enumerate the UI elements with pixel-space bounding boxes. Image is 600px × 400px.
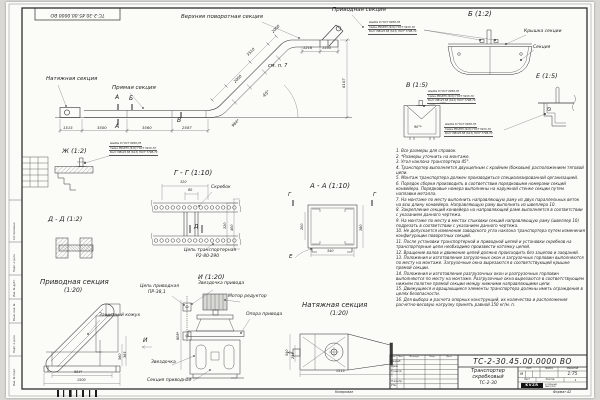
- i-detail-view: [183, 294, 244, 378]
- s-sheets-value: 1: [564, 378, 587, 382]
- callout-bolt: Болт М8х25.58 (S13) ГОСТ 7798-70: [368, 30, 417, 35]
- tension-section-title: Натяжная секция: [302, 302, 367, 309]
- i-detail-title: И (1:20): [198, 274, 225, 281]
- note-item: 10. Не допускается изменение заводского …: [396, 228, 585, 238]
- lit-label: Лит.: [518, 367, 540, 370]
- label-protective-cover: Защитный кожух: [99, 314, 140, 319]
- bolt-callout-zh: Шайба 8 ГОСТ 6958-78 Гайка М8-6Н5 (S13) …: [109, 142, 158, 156]
- label-see-note-7: см. п. 7: [268, 64, 287, 69]
- drive-dim-1500: 1500: [77, 379, 86, 383]
- label-scraper: Скребок: [211, 186, 231, 191]
- label-tension-section: Натяжная секция: [46, 77, 97, 83]
- format-label: Формат А2: [553, 391, 571, 394]
- doc-name-line3: ТС-2-30: [458, 381, 518, 386]
- detail-b-title: Б (1:2): [468, 11, 492, 18]
- detail-aa-title: А - А (1:10): [310, 183, 350, 190]
- detail-v: [404, 101, 446, 141]
- bolt-callout-b: Шайба 8 ГОСТ 6958-78 Гайка М8-6Н5 (S13) …: [368, 21, 417, 35]
- detail-zh-title: Ж (1:2): [62, 148, 87, 155]
- bolt-callout-v: Шайба 8 ГОСТ 6958-78 Гайка М8-6Н5 (S13) …: [427, 90, 476, 104]
- row-nkontr: Н.контр.: [391, 380, 403, 383]
- callout-bolt: Болт М8х25.58 (S13) ГОСТ 7798-70: [427, 99, 476, 104]
- note-item: 4. Транспортер выполняется двухцепным с …: [396, 165, 585, 175]
- drive-dim-984: 984*: [74, 371, 82, 375]
- note-item: 15. Движущиеся и вращающиеся элементы тр…: [396, 286, 585, 296]
- label-straight-section: Прямая секция: [112, 86, 156, 92]
- col-docum: № докум.: [404, 356, 425, 358]
- s-sheet-label: Лист: [518, 378, 536, 381]
- gg-dim-80: 80: [188, 189, 192, 193]
- margin-podp-data-1: Подп. и дата: [13, 254, 16, 272]
- aa-dim-340: 340: [327, 250, 333, 254]
- kvzr-logo-sub2: ЗАВОД РЭП: [545, 386, 556, 388]
- margin-cells: [9, 8, 120, 356]
- row-razrab: Разраб.: [391, 360, 401, 363]
- mark-e: Е: [289, 255, 292, 261]
- detail-gg-dims: [162, 184, 240, 250]
- drive-section-title: Приводная секция: [40, 279, 109, 286]
- mass-label: Масса: [540, 367, 558, 370]
- label-upper-turn-section: Верхняя поворотная секция: [181, 15, 263, 21]
- gg-dim-400: 400: [231, 225, 235, 231]
- tension-dim-540: 540: [286, 350, 290, 356]
- label-drive-section: Приводная секция: [332, 8, 386, 14]
- dim-3500: 3500: [97, 126, 107, 130]
- label-conveyor-chain-2: Р2-80-290: [196, 255, 219, 260]
- dim-3560: 3560: [142, 126, 152, 130]
- dim-1216: 1216: [303, 47, 312, 51]
- callout-bolt: Болт М8х25.58 (S13) ГОСТ 7798-70: [444, 132, 493, 137]
- technical-notes: 1. Все размеры для справок. 2. *Размеры …: [396, 148, 585, 308]
- doc-number: ТС-2-30.45.00.0000 ВО: [459, 357, 586, 366]
- detail-e: [504, 87, 576, 130]
- label-conveyor-chain-1: Цепь транспортерная: [184, 249, 236, 254]
- label-cover-section: Крышка секции: [524, 30, 562, 35]
- note-item: 13. Положения и изготовление загрузочных…: [396, 255, 585, 270]
- kopiroval-label: Копировал: [335, 391, 353, 394]
- note-item: 7. На монтаже по месту выполнить направл…: [396, 197, 585, 207]
- mark-d: Д: [194, 225, 198, 231]
- note-item: 1. Все размеры для справок.: [396, 148, 585, 153]
- drive-section-scale: (1:20): [64, 288, 82, 294]
- drawing-sheet: { "sheet": { "corner_stamp": "ТС-2-30.45…: [0, 0, 600, 400]
- label-drive-sprocket: Звездочка привода: [198, 282, 244, 287]
- aa-dim-380: 380: [360, 225, 364, 231]
- corner-stamp-text: ТС-2-30.45.00.0000 ВО: [35, 8, 120, 20]
- tension-section-scale: (1:20): [330, 311, 348, 317]
- col-podp: Подп.: [425, 356, 440, 358]
- note-item: 8. Закрепление секций конвейера на напра…: [396, 207, 585, 217]
- note-item: 9. На монтаже по месту в местах стыковки…: [396, 218, 585, 228]
- gg-dim-320-top: 320: [180, 181, 186, 185]
- callout-bolt: Болт М8х25.58 (S13) ГОСТ 7798-70: [109, 151, 158, 156]
- dim-6107-height: 6107: [342, 78, 346, 88]
- section-mark-a-top: А: [115, 95, 119, 101]
- detail-e-title: Е (1:5): [536, 73, 558, 80]
- col-data: Дата: [440, 356, 458, 358]
- detail-zh: [55, 155, 112, 190]
- label-sprocket: Звездочка: [151, 361, 176, 366]
- row-tkontr: Т.контр.: [391, 370, 402, 373]
- tension-dim-255: 255: [292, 353, 296, 359]
- note-item: 6. Порядок сборки производить в соответс…: [396, 181, 585, 196]
- margin-inv-podl: Инв. № подл.: [13, 368, 16, 386]
- corner-stamp: ТС-2-30.45.00.0000 ВО: [35, 8, 120, 20]
- tension-section-view: [288, 334, 393, 370]
- detail-v-angle: 90°*: [414, 126, 422, 130]
- col-list: Лист: [397, 356, 404, 358]
- note-item: 11. После установки транспортерной и при…: [396, 239, 585, 249]
- label-drive-chain-2: ПР-38,1: [148, 291, 166, 296]
- detail-gg-title: Г - Г (1:10): [174, 170, 212, 177]
- drive-dim-365: 365: [124, 352, 128, 358]
- label-section: Секция: [533, 46, 550, 51]
- i-dim-808: 808*: [177, 332, 181, 340]
- dim-2587: 2587: [182, 126, 192, 130]
- margin-vzam-inv: Взам. инв. №: [13, 303, 16, 321]
- note-item: 5. Монтаж транспортера должен производит…: [396, 175, 585, 180]
- mark-g-left: Г: [288, 193, 291, 199]
- lit-value: М: [518, 372, 525, 376]
- gg-dim-320-right: 320: [224, 223, 228, 229]
- detail-b: [424, 30, 534, 75]
- note-item: 16. Для выбора и расчета опорных констру…: [396, 297, 585, 307]
- scale-label: Масштаб: [558, 367, 587, 370]
- s-sheets-label: Листов: [536, 378, 564, 381]
- mark-g-right: Г: [373, 193, 376, 199]
- section-mark-a-bottom: А: [115, 124, 119, 130]
- label-drive-section-part: Секция приводная: [147, 379, 191, 384]
- section-mark-v: В: [177, 118, 181, 124]
- scale-value: 1:75: [558, 372, 587, 377]
- note-item: 14. Положения и изготовление разгрузочны…: [396, 271, 585, 286]
- margin-podp-data-2: Подп. и дата: [13, 335, 16, 353]
- label-motor-reducer: Мотор редуктор: [228, 295, 267, 300]
- main-view-linework: [55, 25, 352, 125]
- margin-soglasovano: Согласовано: [13, 223, 16, 240]
- bolt-callout-e: Шайба 8 ГОСТ 6958-78 Гайка М8-6Н5 (S13) …: [444, 123, 493, 137]
- main-view-dims: [58, 15, 364, 133]
- label-drive-support: Опора привода: [246, 313, 282, 318]
- row-utv: Утв.: [391, 384, 396, 387]
- tension-dim-1515: 1515: [336, 370, 345, 374]
- dim-1505: 1505: [322, 47, 331, 51]
- note-item: 2. *Размеры уточнить на монтаже.: [396, 154, 585, 159]
- row-prov: Пров.: [391, 365, 399, 368]
- col-izm: Изм.: [390, 356, 397, 358]
- doc-name-line2: скребковый: [458, 374, 518, 380]
- margin-inv-dubl: Инв. № дубл.: [13, 279, 16, 297]
- label-drive-chain-1: Цепь приводная: [140, 285, 179, 290]
- detail-v-title: В (1:5): [406, 82, 428, 89]
- kvzr-logo: KVZR: [521, 383, 543, 388]
- detail-dd: [56, 238, 93, 258]
- note-item: 12. Вращение валов и движение цепей долж…: [396, 250, 585, 255]
- section-mark-b: Б: [129, 96, 133, 102]
- dim-1515: 1515: [63, 126, 73, 130]
- drive-section-dims: [44, 320, 152, 386]
- aa-dim-200: 200: [301, 224, 305, 230]
- mark-i: И: [143, 338, 148, 344]
- note-item: 3. Угол наклона транспортера 45°.: [396, 159, 585, 164]
- detail-dd-title: Д - Д (1:2): [48, 216, 82, 223]
